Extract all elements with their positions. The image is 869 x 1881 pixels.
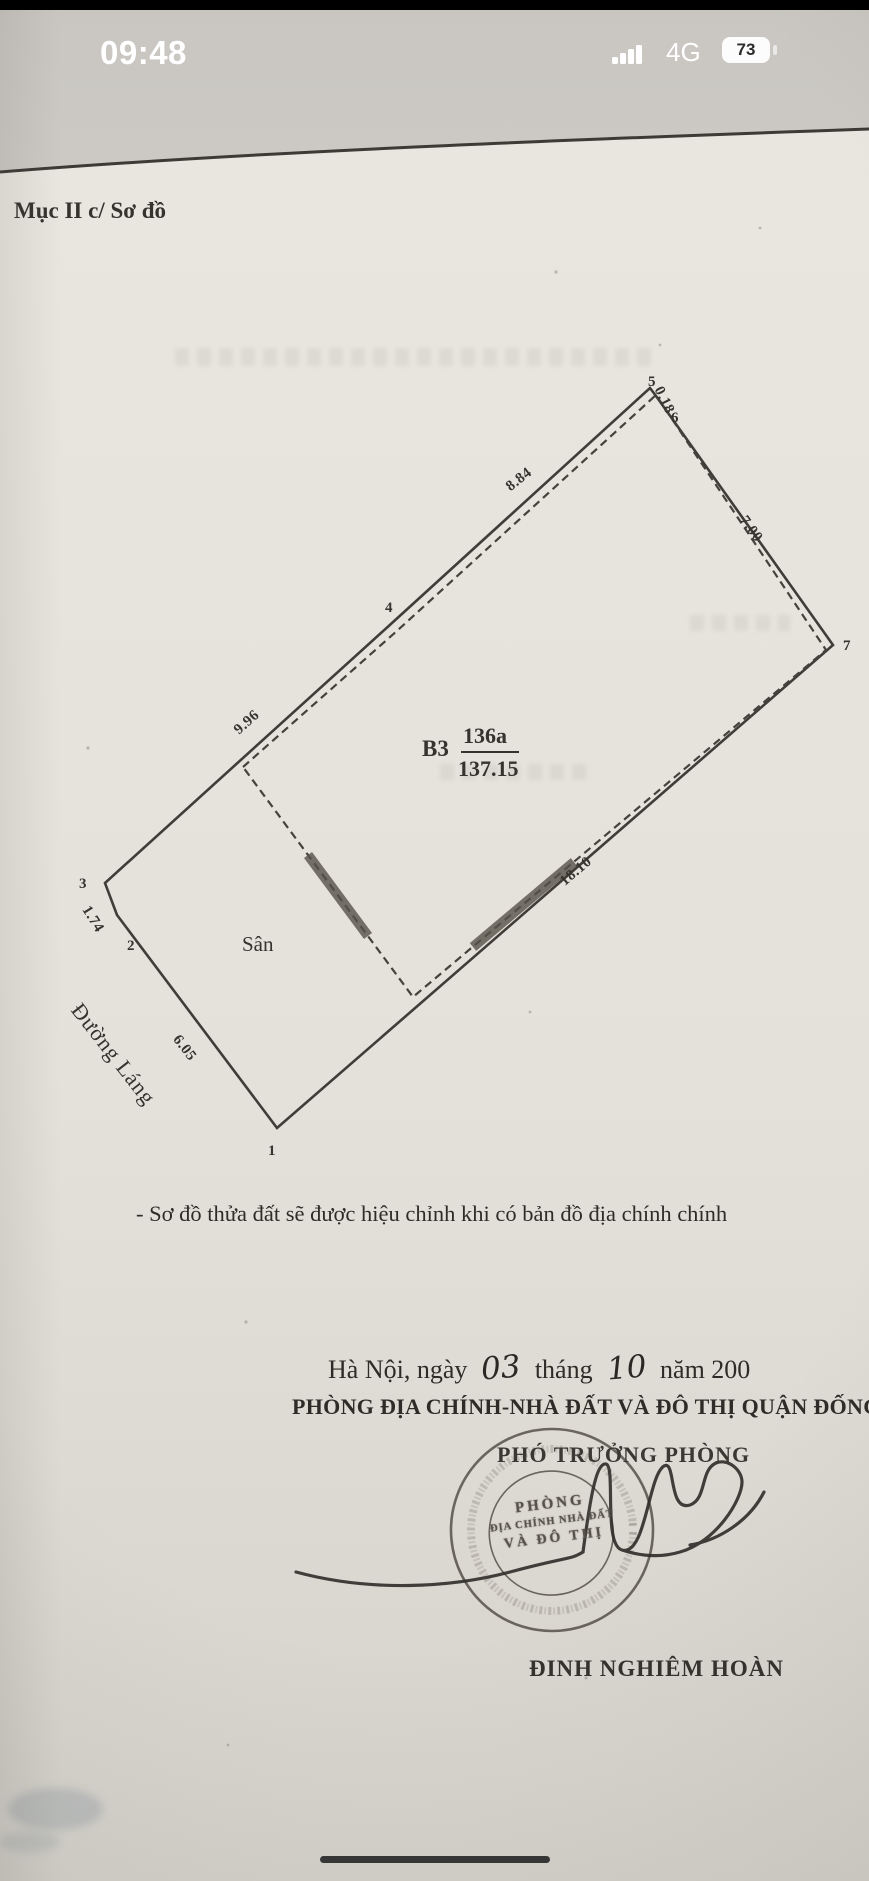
bleed-through-text xyxy=(690,615,790,631)
vertex-label-1: 1 xyxy=(268,1143,276,1160)
office-name: PHÒNG ĐỊA CHÍNH-NHÀ ĐẤT VÀ ĐÔ THỊ QUẬN Đ… xyxy=(292,1394,869,1420)
vertex-label-7: 7 xyxy=(843,638,851,655)
date-month-word: tháng xyxy=(535,1355,593,1385)
battery-percent: 73 xyxy=(737,40,756,60)
signer-name: ĐINH NGHIÊM HOÀN xyxy=(529,1656,784,1682)
parcel-area: 137.15 xyxy=(458,756,519,782)
date-line: Hà Nội, ngày 03 tháng 10 năm 200 xyxy=(328,1350,750,1386)
signer-title: PHÓ TRƯỞNG PHÒNG xyxy=(497,1442,750,1468)
parcel-number: 136a xyxy=(463,723,507,749)
fraction-bar xyxy=(461,751,519,753)
battery-cap xyxy=(773,45,777,55)
yard-label: Sân xyxy=(242,932,274,957)
ink-smudge xyxy=(0,1832,60,1852)
bleed-through-text xyxy=(175,348,655,366)
block-label: B3 xyxy=(422,736,449,762)
date-year: năm 200 xyxy=(660,1355,750,1385)
battery-icon: 73 xyxy=(722,37,770,63)
ink-smudge xyxy=(8,1788,103,1830)
phone-screen: Mục II c/ Sơ đồ 1 2 3 4 5 6 7 6.05 1.74 … xyxy=(0,0,869,1881)
clock: 09:48 xyxy=(100,34,187,72)
status-bar: 09:48 4G 73 xyxy=(0,10,869,90)
diagram-note: - Sơ đồ thửa đất sẽ được hiệu chỉnh khi … xyxy=(136,1201,727,1227)
date-prefix: Hà Nội, ngày xyxy=(328,1355,467,1385)
cellular-signal-icon xyxy=(612,42,648,66)
home-indicator[interactable] xyxy=(320,1856,550,1863)
section-title: Mục II c/ Sơ đồ xyxy=(14,198,166,224)
network-type-label: 4G xyxy=(666,37,701,68)
handwritten-day: 03 xyxy=(480,1348,522,1387)
vertex-label-3: 3 xyxy=(79,876,87,893)
document-photo: Mục II c/ Sơ đồ 1 2 3 4 5 6 7 6.05 1.74 … xyxy=(0,10,869,1881)
paper-sheet xyxy=(0,129,869,1881)
handwritten-month: 10 xyxy=(605,1348,647,1387)
vertex-label-4: 4 xyxy=(385,600,393,617)
vertex-label-6: 6 xyxy=(671,410,679,427)
vertex-label-2: 2 xyxy=(127,938,135,955)
